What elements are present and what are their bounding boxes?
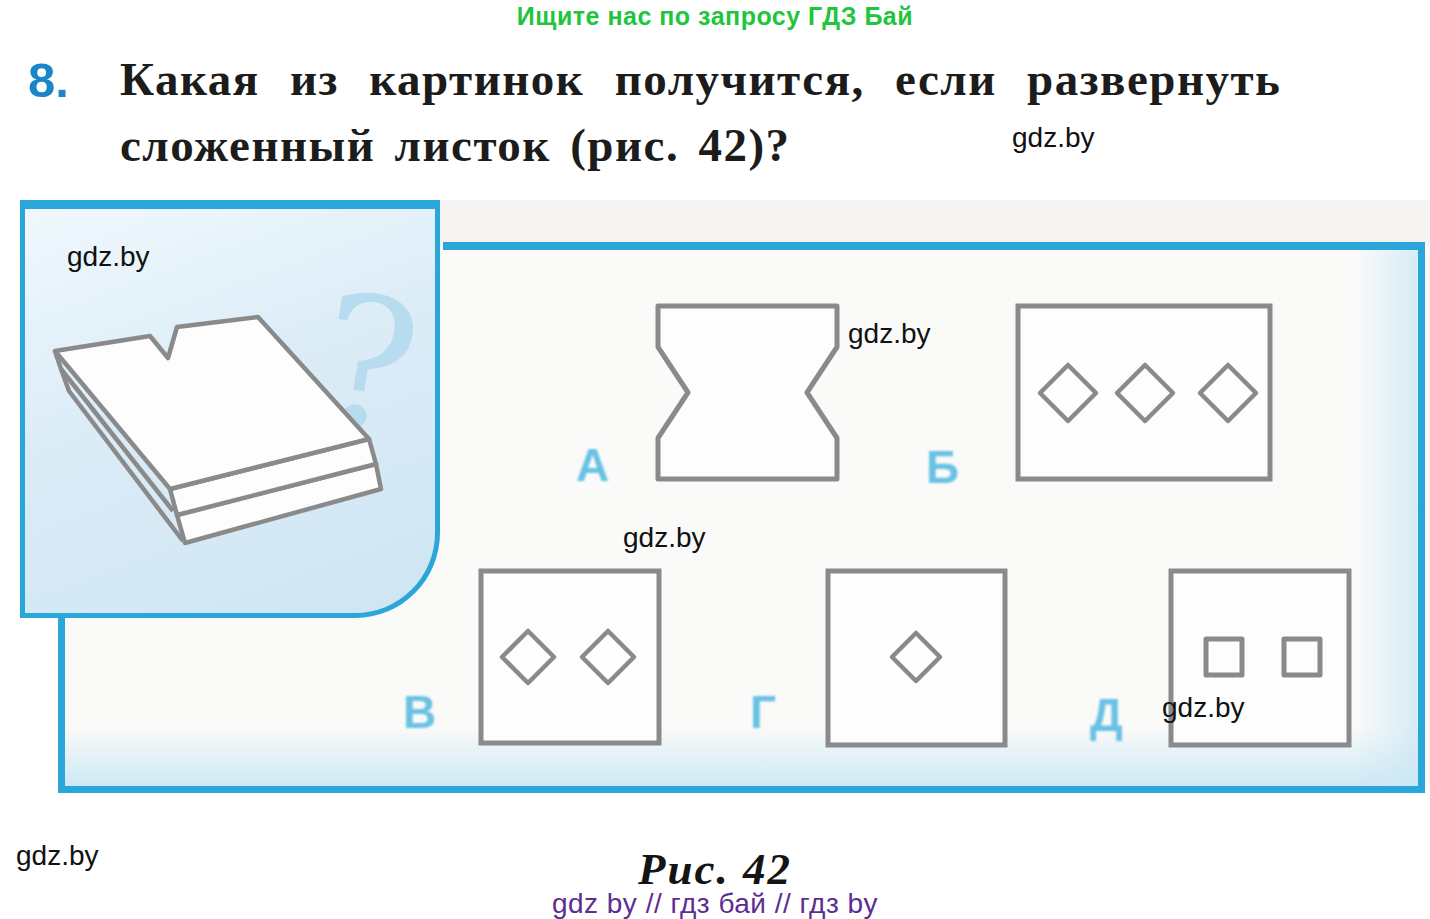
option-a-shape [655, 303, 840, 482]
figure-frame-right [1418, 242, 1425, 792]
option-v-label: В [403, 685, 436, 739]
task-number: 8. [28, 52, 69, 108]
option-a-label: А [576, 438, 609, 492]
figure-background-top [440, 200, 1430, 246]
watermark-gdzby: gdz.by [623, 522, 706, 554]
option-b-label: Б [926, 440, 959, 494]
figure-frame-bottom [58, 786, 1425, 793]
footer-links: gdz by // гдз бай // гдз by [0, 888, 1430, 919]
prompt-box: ? gdz.by [20, 200, 440, 618]
option-g-shape [825, 568, 1008, 748]
option-v-shape [478, 568, 662, 746]
watermark-gdzby: gdz.by [1162, 692, 1245, 724]
rectangle-outline [1018, 306, 1270, 479]
question-line-2: сложенный листок (рис. 42)? [120, 112, 1415, 178]
promo-banner-text: Ищите нас по запросу ГДЗ Бай [0, 2, 1430, 31]
option-b-shape [1015, 303, 1273, 482]
watermark-gdzby: gdz.by [848, 318, 931, 350]
question-text: Какая из картинок получится, если развер… [120, 46, 1415, 178]
notched-square-icon [658, 306, 837, 479]
square-outline [828, 571, 1005, 745]
question-line-1: Какая из картинок получится, если развер… [120, 46, 1415, 112]
figure-right-tint [1355, 250, 1421, 787]
watermark-gdzby: gdz.by [67, 241, 150, 273]
watermark-gdzby: gdz.by [1012, 122, 1095, 154]
figure-frame-top [443, 242, 1422, 250]
figure-frame-left [58, 610, 65, 793]
option-g-label: Г [750, 685, 776, 739]
option-d-label: Д [1090, 688, 1123, 742]
